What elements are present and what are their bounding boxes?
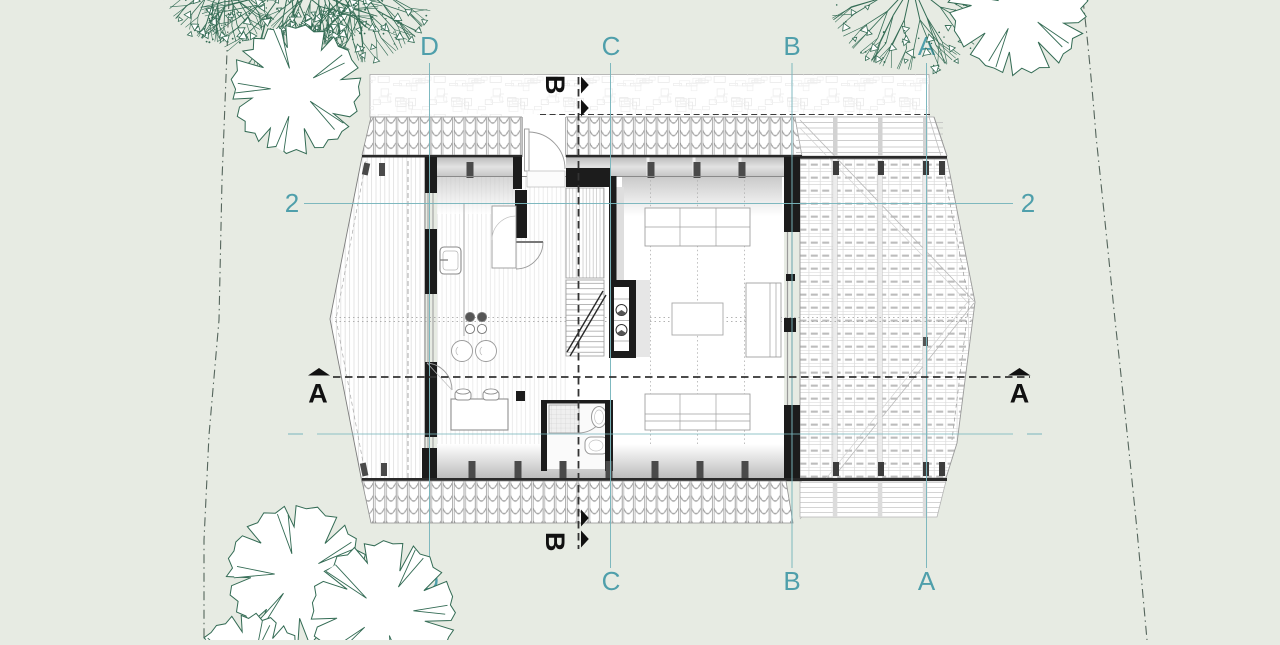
svg-text:A: A [308, 379, 328, 409]
svg-text:B: B [540, 75, 570, 95]
svg-text:D: D [420, 31, 439, 61]
svg-text:B: B [783, 31, 800, 61]
svg-text:A: A [1010, 379, 1030, 409]
svg-text:A: A [918, 566, 936, 596]
svg-text:C: C [602, 566, 621, 596]
svg-text:B: B [540, 532, 570, 552]
svg-text:B: B [783, 566, 800, 596]
svg-text:2: 2 [1021, 188, 1035, 218]
svg-text:2: 2 [285, 188, 299, 218]
svg-text:C: C [602, 31, 621, 61]
